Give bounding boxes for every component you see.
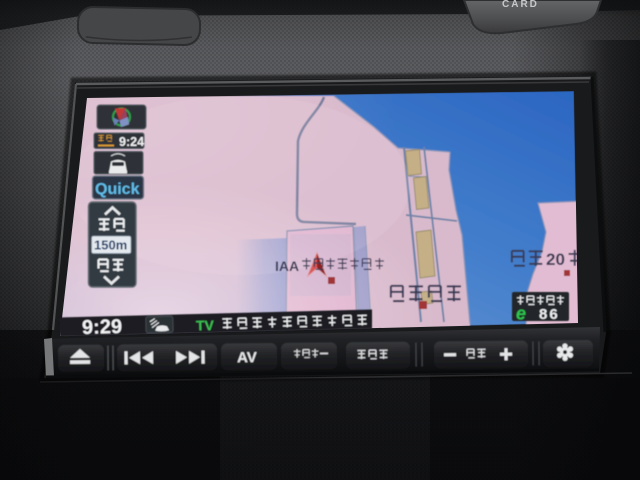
svg-text:150m: 150m bbox=[94, 238, 127, 253]
svg-text:CARD: CARD bbox=[502, 0, 539, 10]
svg-text:IAA: IAA bbox=[275, 258, 299, 274]
svg-text:TV: TV bbox=[196, 317, 215, 333]
svg-text:9:24: 9:24 bbox=[119, 135, 144, 149]
svg-text:Quick: Quick bbox=[95, 181, 140, 198]
svg-text:e: e bbox=[516, 304, 526, 324]
svg-text:20: 20 bbox=[546, 250, 565, 269]
svg-text:86: 86 bbox=[539, 306, 560, 323]
svg-text:9:29: 9:29 bbox=[82, 316, 123, 339]
svg-text:AV: AV bbox=[237, 349, 257, 366]
